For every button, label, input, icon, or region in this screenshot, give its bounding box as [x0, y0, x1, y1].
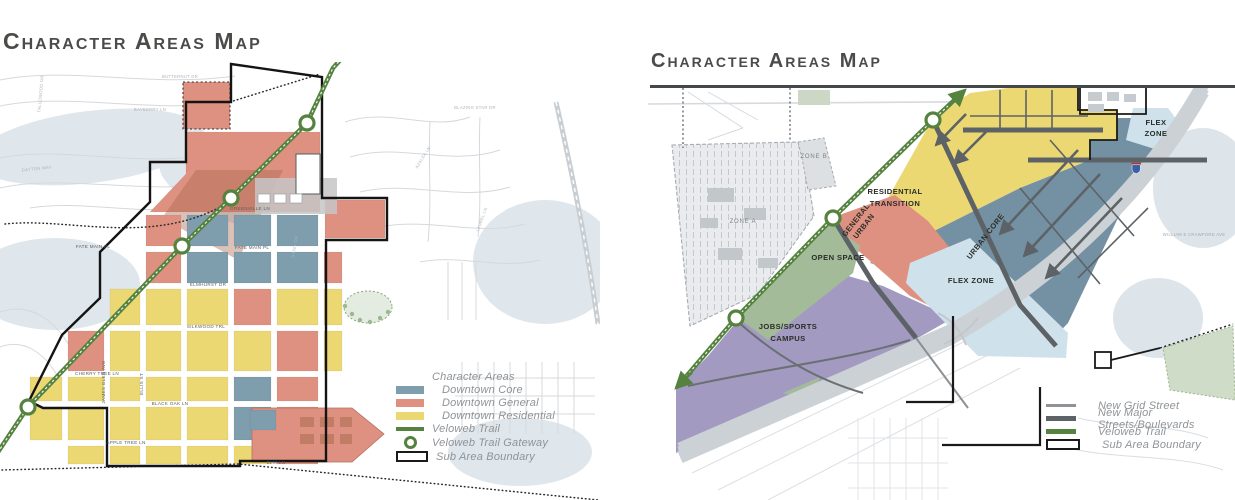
street-label: CHERRY TREE LN [75, 371, 119, 376]
zone-label: FLEX ZONE [948, 276, 994, 285]
major-streets-swatch [1046, 416, 1076, 421]
buildings-northeast [1088, 92, 1136, 112]
legend-header-row: Character Areas [396, 370, 555, 383]
legend-row-downtown-residential: Downtown Residential [396, 409, 555, 422]
legend-row-major-streets: New Major Streets/Boulevards [1046, 412, 1235, 425]
street-label: BLACK OAK LN [152, 401, 189, 406]
legend-row-trail-gateway: Veloweb Trail Gateway [396, 435, 555, 450]
trail-gateway-icon [300, 116, 314, 130]
legend-label: Veloweb Trail [1098, 426, 1166, 438]
zone-label: JOBS/SPORTS [759, 322, 817, 331]
green-patch-top [798, 90, 830, 105]
zone-label: TRANSITION [870, 199, 920, 208]
street-label: JAMES GLEN AVE [101, 360, 106, 403]
boundary-swatch [1046, 439, 1080, 450]
pond-and-trees [343, 291, 392, 324]
zone-label: OPEN SPACE [811, 253, 864, 262]
street-label: TALLOWOOD DR [36, 75, 44, 113]
interstate-shield-icon [1132, 163, 1141, 174]
street-label: BLAZING STAR DR [454, 105, 496, 110]
legend-label: Veloweb Trail [432, 423, 500, 435]
street-label: APPLE TREE LN [106, 440, 145, 445]
veloweb-trail-swatch [1046, 429, 1076, 434]
trail-gateway-icon [826, 211, 840, 225]
legend-label: Downtown Residential [432, 410, 555, 422]
street-label: FATE MAIN PL [235, 245, 270, 250]
trail-gateway-icon [175, 239, 189, 253]
downtown-core-swatch [396, 386, 424, 394]
street-label: ELLIS ST [139, 373, 144, 395]
downtown-residential-swatch [396, 412, 424, 420]
right-map-title: Character Areas Map [651, 50, 882, 73]
legend-row-veloweb-trail: Veloweb Trail [396, 422, 555, 435]
legend-label: Downtown General [432, 397, 539, 409]
trail-gateway-icon [224, 191, 238, 205]
zone-label: FLEX [1145, 118, 1166, 127]
legend-label: Sub Area Boundary [1102, 439, 1201, 451]
trail-gateway-icon [21, 400, 35, 414]
legend-label: Downtown Core [432, 384, 523, 396]
zone-label: RESIDENTIAL [867, 187, 922, 196]
street-label: AZALEA LN [414, 145, 432, 169]
legend-row-downtown-core: Downtown Core [396, 383, 555, 396]
zone-label: ZONE [1145, 129, 1168, 138]
boundary-swatch [396, 451, 428, 462]
legend-label: Sub Area Boundary [436, 451, 535, 463]
left-map-title: Character Areas Map [3, 28, 262, 55]
legend-label: Veloweb Trail Gateway [432, 437, 548, 449]
legend-row-sub-area-boundary: Sub Area Boundary [1046, 438, 1235, 451]
zone-b-label: ZONE B [800, 154, 827, 160]
legend-spacer [396, 373, 424, 381]
street-label: BAYBERRY LN [134, 107, 166, 112]
trail-gateway-icon [729, 311, 743, 325]
left-map-legend: Character Areas Downtown Core Downtown G… [396, 370, 555, 463]
zone-label: CAMPUS [770, 334, 805, 343]
street-label: ELM LN [267, 460, 285, 465]
trail-gateway-icon [926, 113, 940, 127]
veloweb-trail-swatch [396, 427, 424, 431]
right-map-legend: New Grid Street New Major Streets/Boulev… [1046, 399, 1235, 451]
street-label: WILLIAM E CRAWFORD AVE [1163, 232, 1225, 237]
grid-street-swatch [1046, 404, 1076, 407]
legend-row-downtown-general: Downtown General [396, 396, 555, 409]
character-areas-maps-page: { "left_map": { "title": "Character Area… [0, 0, 1235, 500]
trail-gateway-icon [404, 436, 417, 449]
zone-a-label: ZONE A [730, 219, 757, 225]
street-label: ELMHURST DR [190, 282, 227, 287]
street-label: BUTTERNUT DR [162, 74, 198, 79]
dashed-boundaries [683, 88, 790, 148]
legend-header: Character Areas [432, 371, 515, 383]
legend-row-sub-area-boundary: Sub Area Boundary [396, 450, 555, 463]
street-label: GREENVILLE LN [230, 206, 270, 211]
downtown-general-swatch [396, 399, 424, 407]
street-label: FATE MAIN PL [76, 244, 111, 249]
downtown-general-north-block [183, 82, 230, 129]
street-label: SILKWOOD TRL [187, 324, 225, 329]
gateway-swatch-wrap [396, 436, 424, 449]
